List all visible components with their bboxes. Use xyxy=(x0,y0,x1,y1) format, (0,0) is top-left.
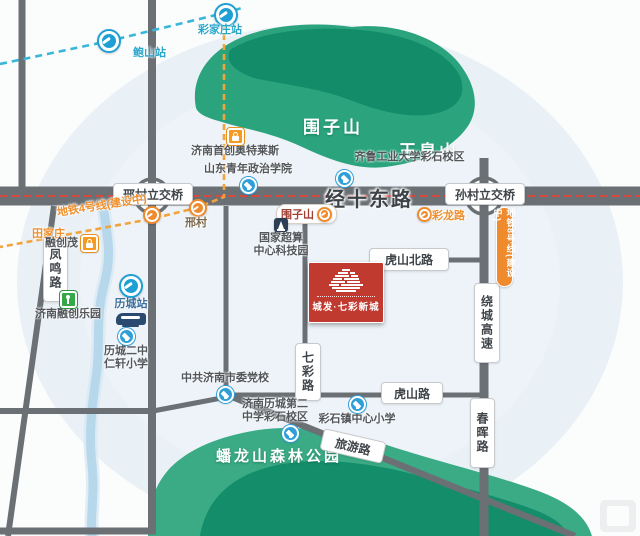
metro-line4-icon[interactable] xyxy=(143,206,161,224)
poi-rongchuang-park[interactable]: 济南融创乐园 xyxy=(27,291,109,321)
metro-station-label-xingcun: 邢村 xyxy=(185,214,207,230)
poi-label: 济南首创奥特莱斯 xyxy=(191,145,279,158)
school-icon xyxy=(118,328,135,345)
poi-shouchuang-outlets[interactable]: 济南首创奥特莱斯 xyxy=(175,128,295,158)
mall-icon xyxy=(81,235,98,252)
metro-station-icon-baoshan[interactable] xyxy=(97,29,121,53)
poi-licheng-station[interactable]: 历城站 xyxy=(101,274,161,325)
poi-label: 济南融创乐园 xyxy=(35,308,101,321)
poi-label: 融创茂 xyxy=(45,237,78,250)
road-label-raocheng: 绕城高速 xyxy=(474,283,500,363)
poi-label: 中共济南市委党校 xyxy=(181,372,269,385)
poi-label: 彩石镇中心小学 xyxy=(319,413,396,426)
location-map: 围子山 玉皇山 蟠龙山森林公园 经十东路 邢村立交桥 孙村立交桥 凤鸣路 七彩路… xyxy=(0,0,640,536)
train-icon xyxy=(116,313,146,325)
school-icon[interactable] xyxy=(336,170,353,187)
poi-label-line1: 历城二中 xyxy=(104,345,148,358)
poi-rongchuang-mall[interactable]: 融创茂 xyxy=(45,235,98,252)
project-name: 城发·七彩新城 xyxy=(312,299,379,313)
school-icon xyxy=(240,177,257,194)
school-icon xyxy=(349,396,366,413)
metro-station-icon-cailonglu[interactable] xyxy=(417,207,432,222)
supercomputing-icon xyxy=(274,218,288,232)
poi-label-line1: 济南历城第二 xyxy=(242,398,308,411)
road-label-suncun-interchange: 孙村立交桥 xyxy=(445,183,525,205)
road-label-chunhui: 春晖路 xyxy=(470,398,495,468)
metro-station-label-baoshan: 鲍山站 xyxy=(133,44,166,60)
poi-renxuan-primary[interactable]: 历城二中 仁轩小学 xyxy=(96,328,156,371)
watermark xyxy=(600,500,636,532)
park-icon xyxy=(60,291,77,308)
poi-label-line2: 中心科技园 xyxy=(254,245,309,258)
mountain-label-weizishan: 围子山 xyxy=(303,113,363,138)
road-label-jingshidong: 经十东路 xyxy=(325,183,413,212)
poi-label: 历城站 xyxy=(115,298,148,311)
project-logo-divider xyxy=(317,296,375,297)
metro-line8-badge: 地铁8号线(建设中) xyxy=(496,207,513,287)
school-icon xyxy=(282,425,299,442)
poi-label-line1: 国家超算 xyxy=(259,232,303,245)
project-logo xyxy=(329,269,363,293)
poi-qilu-tech-university[interactable]: 齐鲁工业大学彩石校区 xyxy=(347,151,472,164)
metro-station-label-caijiazhuang: 彩家庄站 xyxy=(198,21,242,37)
poi-supercomputing-park[interactable]: 国家超算 中心科技园 xyxy=(236,218,326,258)
mall-icon xyxy=(227,128,244,145)
poi-label: 齐鲁工业大学彩石校区 xyxy=(355,151,465,164)
poi-caishi-primary[interactable]: 彩石镇中心小学 xyxy=(307,396,407,426)
road-label-qicai: 七彩路 xyxy=(295,343,321,401)
project-marker[interactable]: 城发·七彩新城 xyxy=(308,262,384,323)
metro-station-label-cailonglu: 彩龙路 xyxy=(432,207,465,223)
poi-label: 山东青年政治学院 xyxy=(204,163,292,176)
poi-shandong-youth-college[interactable]: 山东青年政治学院 xyxy=(188,163,308,194)
poi-label-line2: 仁轩小学 xyxy=(104,358,148,371)
metro-station-icon-licheng xyxy=(119,274,143,298)
poi-label-line2: 中学彩石校区 xyxy=(242,411,308,424)
